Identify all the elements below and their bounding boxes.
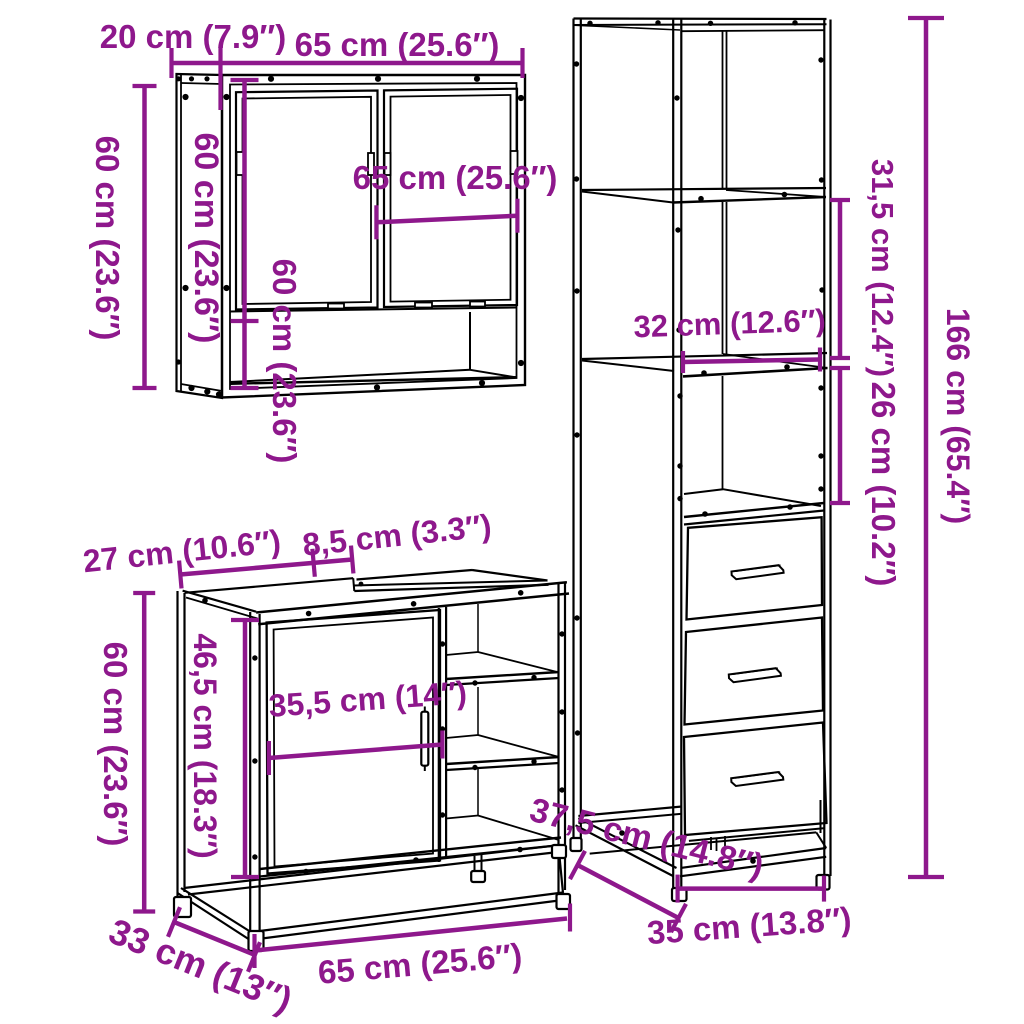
svg-text:65 cm (25.6″): 65 cm (25.6″)	[353, 159, 558, 196]
svg-text:166 cm (65.4″): 166 cm (65.4″)	[940, 308, 976, 524]
svg-text:20 cm (7.9″): 20 cm (7.9″)	[100, 18, 286, 55]
svg-text:60 cm (23.6″): 60 cm (23.6″)	[97, 642, 134, 847]
svg-text:65 cm (25.6″): 65 cm (25.6″)	[295, 26, 500, 63]
svg-text:46,5 cm (18.3″): 46,5 cm (18.3″)	[187, 633, 223, 858]
svg-text:60 cm (23.6″): 60 cm (23.6″)	[187, 133, 225, 344]
svg-text:60 cm (23.6″): 60 cm (23.6″)	[266, 259, 303, 464]
svg-text:32 cm (12.6″): 32 cm (12.6″)	[633, 303, 826, 345]
svg-text:26 cm (10.2″): 26 cm (10.2″)	[865, 382, 902, 587]
svg-text:31,5 cm (12.4″): 31,5 cm (12.4″)	[865, 159, 900, 377]
svg-text:60 cm (23.6″): 60 cm (23.6″)	[89, 136, 126, 341]
